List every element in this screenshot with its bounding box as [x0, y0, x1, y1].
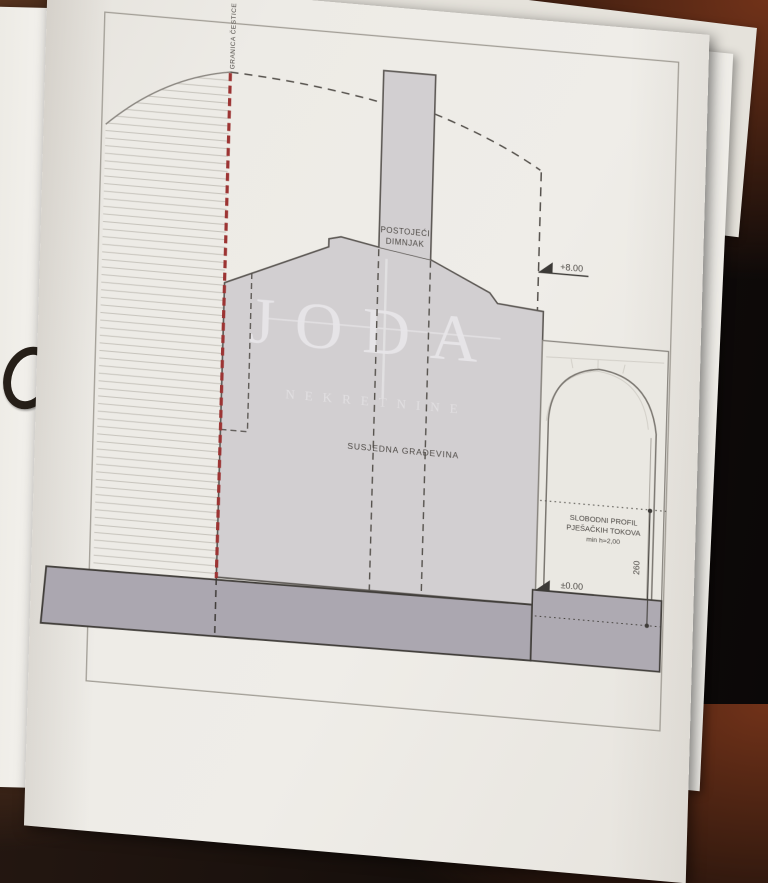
hatched-existing-structure [93, 61, 230, 578]
dimension-value-260: 260 [631, 560, 641, 575]
sidewalk-strip [531, 590, 662, 672]
photo-of-architectural-drawing: { "labels": { "boundary": "GRANICA ČESTI… [0, 0, 768, 704]
envelope-dashed-left [230, 72, 381, 102]
drawing-page: JODA NEKRETNINE [24, 0, 709, 883]
level-triangle-icon [538, 261, 552, 273]
envelope-dashed-right [433, 114, 541, 170]
boundary-label: GRANICA ČESTICE [228, 2, 239, 69]
level-value-zero: ±0.00 [560, 580, 583, 592]
neighbor-building-outline [216, 227, 545, 605]
level-marker-plus-8: +8.00 [538, 260, 588, 276]
level-value-plus-8: +8.00 [560, 262, 583, 274]
elevation-drawing: JODA NEKRETNINE [24, 0, 709, 883]
